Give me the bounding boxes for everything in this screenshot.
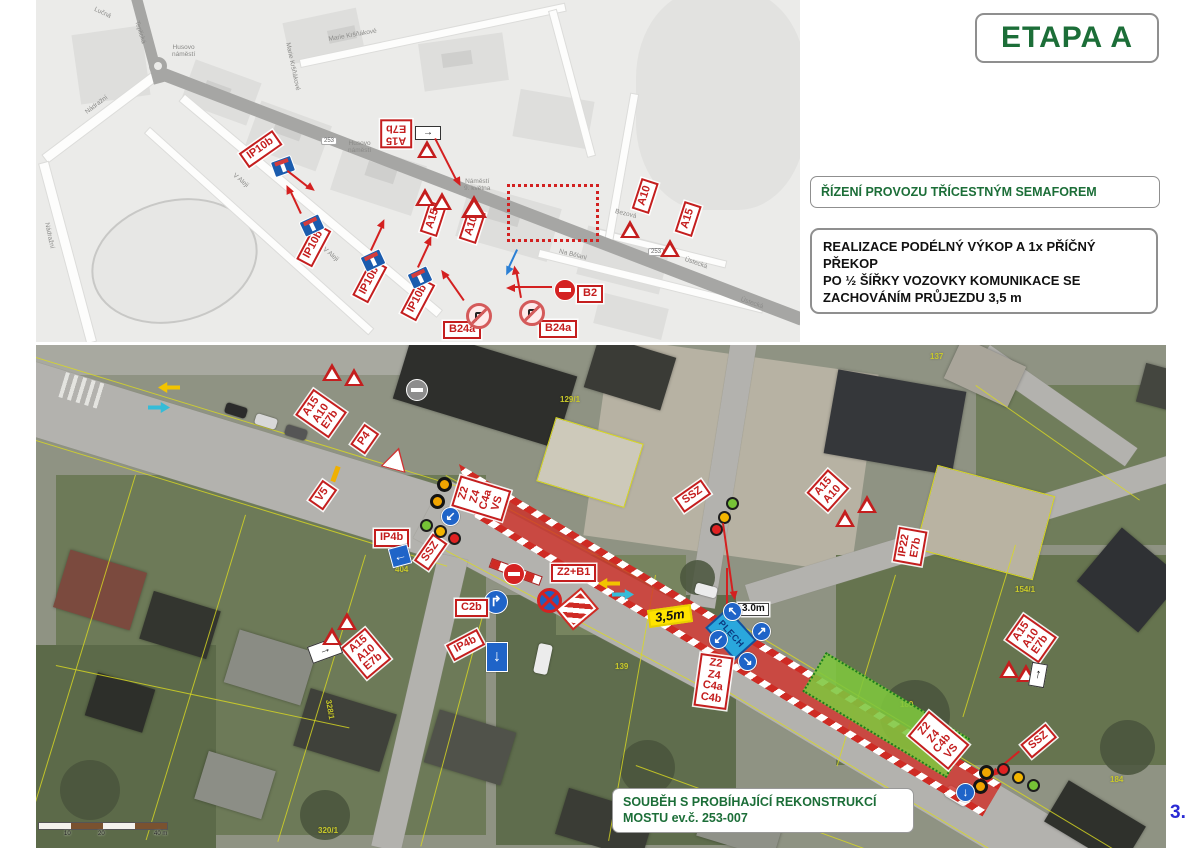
pointer-arrow	[446, 275, 465, 301]
traffic-flow-arrow-yellow	[158, 382, 180, 393]
direction-arrow-sign: →	[415, 126, 441, 140]
street-label: Náměstí 9. května	[464, 178, 490, 192]
traffic-light-red	[997, 763, 1010, 776]
traffic-light-yellow	[434, 525, 447, 538]
bridge-note: SOUBĚH S PROBÍHAJÍCÍ REKONSTRUKCÍ MOSTU …	[612, 788, 914, 833]
no-entry-sign-icon	[503, 563, 525, 585]
street-label: V Aleji	[231, 172, 249, 189]
street-nadrazni	[39, 162, 96, 342]
traffic-light-red	[710, 523, 723, 536]
pass-direction-sign-icon: ↓	[956, 783, 975, 802]
scale-bar	[38, 822, 168, 830]
pass-direction-sign-icon: ↗	[752, 622, 771, 641]
beacon-icon	[979, 765, 994, 780]
sign-label-a15-e7b: A15 E7b	[380, 119, 412, 148]
pass-direction-sign-icon: ↙	[441, 507, 460, 526]
work-area-outline	[507, 184, 599, 242]
sign-label-ip22-e7b: IP22 E7b	[893, 527, 928, 566]
pass-direction-sign-icon: ↖	[723, 602, 742, 621]
no-turn-sign-icon	[466, 303, 492, 329]
terrain-patch	[36, 345, 416, 375]
street-label: Husovo náměstí	[172, 44, 195, 58]
parcel-number: 137	[930, 352, 943, 361]
plate-gap-label: 3.0m	[738, 603, 769, 616]
street-side	[605, 94, 638, 243]
traffic-light-green	[1027, 779, 1040, 792]
street-label: Husovo náměstí	[348, 140, 371, 154]
traffic-control-text: ŘÍZENÍ PROVOZU TŘÍCESTNÝM SEMAFOREM	[821, 185, 1097, 199]
sign-label-z2-b1: Z2+B1	[551, 564, 596, 582]
car	[254, 413, 278, 430]
realization-note: REALIZACE PODÉLNÝ VÝKOP A 1x PŘÍČNÝ PŘEK…	[810, 228, 1158, 314]
warning-triangle-icon	[432, 192, 452, 210]
beacon-icon	[437, 477, 452, 492]
traffic-light-green	[726, 497, 739, 510]
traffic-light-red	[448, 532, 461, 545]
no-entry-sign-icon	[554, 279, 576, 301]
existing-sign-icon	[406, 379, 428, 401]
warning-triangle-icon	[417, 140, 437, 158]
street-label: Bezová	[614, 208, 637, 220]
traffic-light-green	[420, 519, 433, 532]
street-label: V Aleji	[321, 246, 339, 263]
parcel-number: 129/1	[560, 395, 580, 404]
road-number-badge: 253	[321, 137, 337, 145]
beacon-icon	[973, 779, 988, 794]
warning-triangle-icon	[620, 220, 640, 238]
pass-direction-sign-icon: ↘	[738, 652, 757, 671]
sign-label-p4: P4	[350, 423, 379, 454]
parcel-number: 139	[615, 662, 628, 671]
parcel-number: 154/1	[1015, 585, 1035, 594]
sign-label-a15: A15	[675, 201, 702, 237]
scale-tick: 10	[64, 831, 71, 837]
street-label: Nádražní	[43, 222, 55, 249]
aerial-map: 129/1 137 404 139 154/1 189 184 328/1 32…	[36, 345, 1166, 848]
pointer-arrow	[370, 226, 383, 250]
scale-tick: 40 m	[154, 831, 167, 837]
stage-title-box: ETAPA A	[975, 13, 1159, 63]
page-number: 3.	[1170, 802, 1186, 824]
pass-direction-sign-icon: ↙	[709, 630, 728, 649]
sign-label-b2: B2	[577, 285, 603, 303]
sign-label-b24a: B24a	[539, 320, 577, 338]
tree	[620, 740, 675, 795]
no-turn-sign-icon	[519, 300, 545, 326]
blue-arrow-sign-icon: ↓	[486, 642, 508, 672]
tree	[60, 760, 120, 820]
roundabout	[149, 57, 167, 75]
traffic-control-note: ŘÍZENÍ PROVOZU TŘÍCESTNÝM SEMAFOREM	[810, 176, 1160, 208]
map-hill-area	[636, 0, 800, 210]
pointer-arrow	[726, 568, 728, 606]
beacon-icon	[430, 494, 445, 509]
pointer-arrow	[417, 243, 430, 267]
map-block	[593, 292, 669, 340]
building-roof	[584, 345, 677, 410]
sign-label-c2b: C2b	[455, 599, 488, 617]
street-map: Lučná Teplická Husovo náměstí Husovo nám…	[36, 0, 800, 342]
stadium-oval	[77, 180, 272, 342]
scale-tick: 20	[98, 831, 105, 837]
street-label: Lučná	[93, 6, 112, 20]
parcel-number: 320/1	[318, 826, 338, 835]
tree	[1100, 720, 1155, 775]
terrain-patch	[36, 645, 216, 848]
sign-label-a10: A10	[632, 178, 659, 214]
traffic-light-yellow	[1012, 771, 1025, 784]
parcel-number: 184	[1110, 775, 1123, 784]
stage-title: ETAPA A	[1001, 21, 1133, 55]
traffic-light-yellow	[718, 511, 731, 524]
